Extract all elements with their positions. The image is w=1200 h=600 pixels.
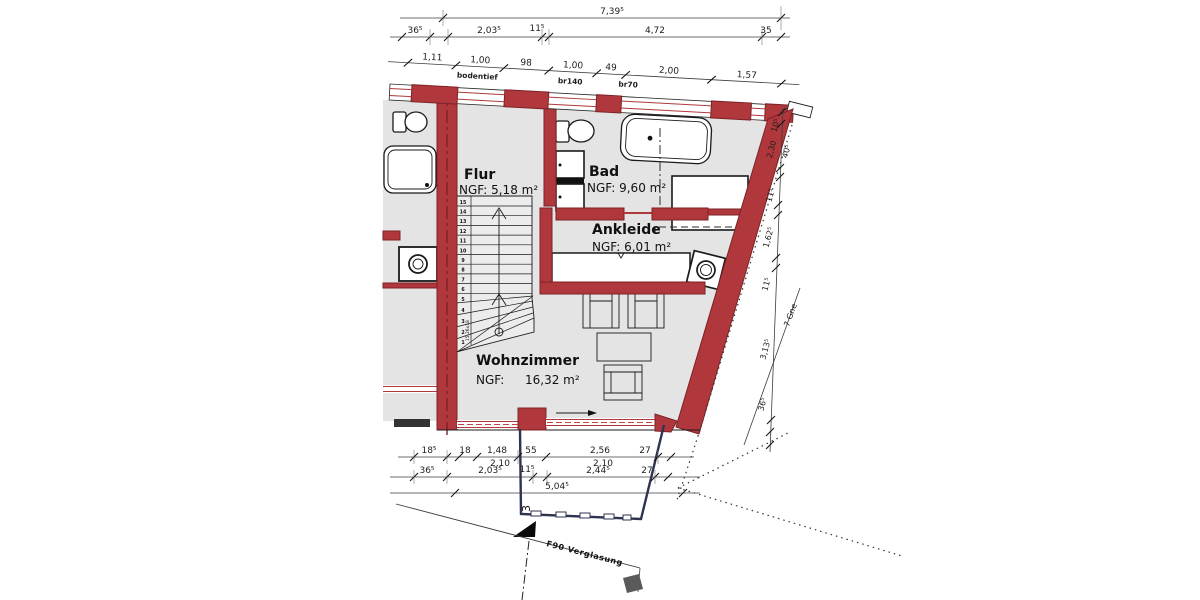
dimensions-top: 7,39⁵ 36⁵ 2,03⁵ 11⁵ 4,72 35 1,11 1,00 98 (387, 6, 800, 99)
room-area-wohnzimmer-label: NGF: (476, 373, 504, 387)
dim-top: 35 (760, 26, 771, 36)
dim-right: 11⁵ (761, 277, 773, 292)
dim-wall: 98 (520, 58, 532, 69)
stair-step-number: 5 (461, 297, 464, 303)
bottom-pier (518, 408, 546, 430)
dim-bottom: 1,48 (487, 446, 507, 456)
stair-step-number: 11 (460, 239, 467, 245)
dim-wall: 1,00 (563, 60, 584, 71)
dim-wall: 1,57 (736, 70, 757, 81)
dim-bottom: 18 (459, 446, 471, 456)
dim-bottom: 18⁵ (421, 446, 436, 456)
stair-dimension-label: 15,26x18 (465, 320, 471, 341)
room-name-wohnzimmer: Wohnzimmer (476, 353, 579, 369)
glazing-label: F90 Verglasung (545, 539, 623, 567)
dim-wall: 49 (605, 63, 617, 74)
dim-bottom2: 27 (641, 466, 652, 476)
leader-label: 7 Gne (782, 302, 799, 328)
stair-step-number: 12 (460, 229, 467, 235)
dim-top: 11⁵ (529, 24, 544, 34)
dim-wall: 2,00 (659, 66, 680, 77)
stair-step-number: 7 (461, 277, 464, 283)
stair-step-number: 1 (461, 340, 464, 346)
window-label: br140 (558, 76, 583, 86)
dim-bottom-total: 5,04⁵ (545, 482, 569, 492)
dim-bottom: 2,56 (590, 446, 610, 456)
dim-top-total: 7,39⁵ (600, 7, 624, 17)
dim-bottom2: 36⁵ (419, 466, 434, 476)
stair-step-number: 10 (460, 248, 467, 254)
stair-step-number: 14 (460, 210, 467, 216)
room-area-ankleide: NGF: 6,01 m² (592, 240, 671, 254)
toilet-bowl-icon (568, 120, 594, 142)
dim-right: 1,62⁵ (762, 226, 776, 249)
dim-top: 36⁵ (407, 26, 422, 36)
stair-step-number: 2 (461, 330, 464, 336)
dim-right: 36⁵ (757, 397, 769, 412)
neighbor-toilet-bowl-icon (405, 112, 427, 132)
bad-closet-icon (672, 176, 748, 230)
window-label: bodentief (457, 70, 499, 81)
dim-bottom: 55 (525, 446, 536, 456)
bathtub-icon (620, 114, 712, 165)
dim-right: 3,13⁵ (759, 338, 773, 361)
balcony-mark: 3 (520, 505, 533, 512)
dim-bottom2: 11⁵ (519, 465, 534, 475)
floor-plan-drawing: 1 2 3 4 5 6 7 8 9 10 11 12 13 14 15 15,2… (0, 0, 1200, 600)
dim-bottom2: 2,03⁵ (478, 466, 502, 476)
wall-fragment (623, 574, 643, 593)
room-name-bad: Bad (589, 164, 619, 180)
room-name-flur: Flur (464, 167, 495, 183)
room-name-ankleide: Ankleide (592, 222, 661, 238)
dim-bottom2: 2,44⁵ (586, 466, 610, 476)
stair-step-number: 15 (460, 200, 467, 206)
room-area-bad: NGF: 9,60 m² (587, 181, 666, 195)
room-area-wohnzimmer-value: 16,32 m² (525, 373, 580, 387)
floor-plan-canvas: 1 2 3 4 5 6 7 8 9 10 11 12 13 14 15 15,2… (0, 0, 1200, 600)
stair-step-number: 13 (460, 219, 467, 225)
dim-wall: 1,11 (422, 53, 443, 64)
dim-bottom: 27 (639, 446, 650, 456)
dim-top: 2,03⁵ (477, 26, 501, 36)
neighbor-duct-icon (399, 247, 437, 281)
section-arrow-icon (513, 521, 536, 537)
room-area-flur: NGF: 5,18 m² (459, 183, 538, 197)
neighbor-toilet-tank-icon (393, 112, 406, 132)
dim-top: 4,72 (645, 26, 665, 36)
neighbor-wall-segment (394, 419, 430, 427)
stair-step-number: 3 (461, 319, 464, 325)
section-line (522, 541, 529, 600)
toilet-tank-icon (556, 121, 569, 142)
staircase: 1 2 3 4 5 6 7 8 9 10 11 12 13 14 15 15,2… (456, 196, 534, 352)
dim-wall: 1,00 (470, 55, 491, 66)
window-label: br70 (618, 80, 638, 90)
